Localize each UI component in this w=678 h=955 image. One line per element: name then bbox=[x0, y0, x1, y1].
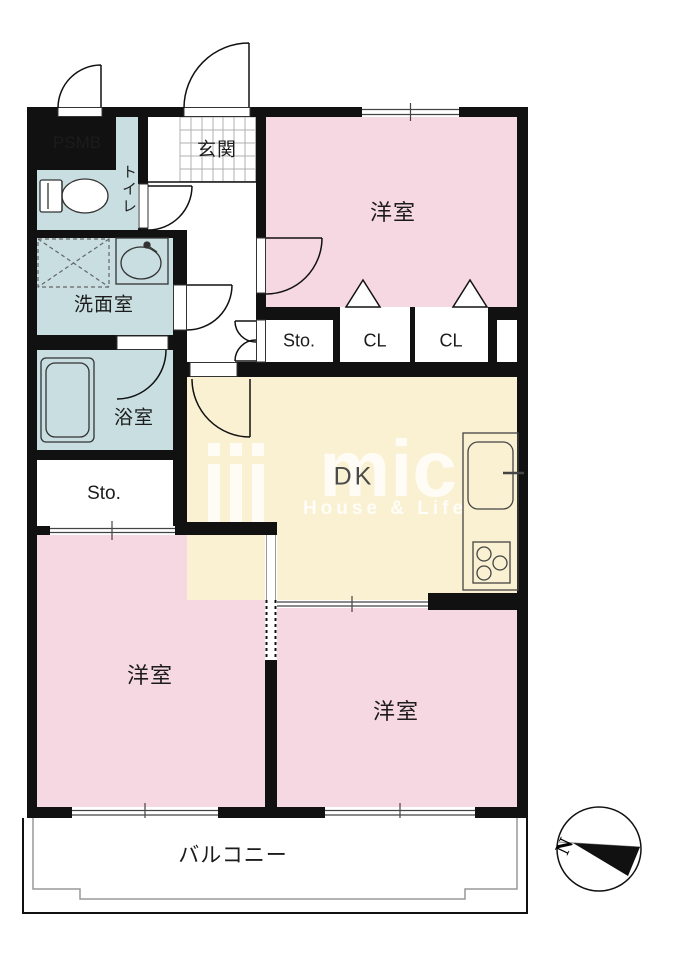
logo-dot bbox=[208, 443, 220, 456]
wall-dk-north bbox=[237, 362, 528, 377]
wall-hall-west bbox=[173, 230, 187, 535]
closet1-opening bbox=[340, 307, 410, 320]
wall-closet-stub-1 bbox=[333, 320, 340, 362]
logo-dot bbox=[230, 443, 242, 456]
storage-hall-double-door bbox=[235, 321, 256, 361]
logo-dot bbox=[252, 443, 264, 456]
label-balcony: バルコニー bbox=[178, 839, 288, 869]
closet2-opening bbox=[415, 307, 488, 320]
toilet-door-sill bbox=[139, 184, 148, 228]
wall-dk-southwest bbox=[173, 522, 277, 535]
entrance-door-sill bbox=[184, 108, 250, 117]
wall-toilet-south bbox=[27, 230, 187, 238]
label-washroom: 洗面室 bbox=[74, 290, 134, 317]
watermark-tagline: House & Life bbox=[303, 498, 467, 519]
wall-between-bedrooms bbox=[265, 660, 277, 818]
bathroom-floor bbox=[36, 335, 173, 460]
wall-bathroom-storage bbox=[27, 450, 187, 460]
wall-storage-stub bbox=[37, 526, 50, 535]
label-closet-1: CL bbox=[363, 331, 386, 352]
label-pipe-space: PSMB bbox=[53, 133, 101, 153]
wall-closet-stub-3 bbox=[488, 320, 497, 362]
label-closet-2: CL bbox=[439, 331, 462, 352]
wall-bedroom-south-a bbox=[256, 307, 340, 320]
wall-closet-stub-2 bbox=[410, 320, 415, 362]
label-bedroom-southeast: 洋室 bbox=[373, 694, 419, 726]
entrance-door-swing bbox=[184, 43, 249, 108]
dk-door-sill bbox=[190, 363, 237, 377]
psmb-door-swing bbox=[58, 65, 101, 108]
watermark-logo bbox=[208, 443, 264, 522]
partition-strip bbox=[265, 535, 277, 660]
label-entrance: 玄関 bbox=[197, 135, 237, 162]
toilet-door-swing bbox=[148, 186, 192, 230]
label-bedroom-north: 洋室 bbox=[370, 195, 416, 227]
floor-plan: mic House & Life bbox=[0, 0, 678, 955]
bedroom-north-door-sill bbox=[257, 238, 266, 293]
wall-hall-bedroom-upper bbox=[256, 117, 266, 238]
label-toilet: トイレ bbox=[118, 164, 139, 215]
logo-bar bbox=[208, 464, 220, 522]
wall-dk-north-corner bbox=[185, 362, 190, 377]
wall-bedroom-south-mid bbox=[410, 307, 415, 320]
label-bathroom: 浴室 bbox=[114, 403, 154, 430]
wall-east bbox=[517, 107, 528, 818]
psmb-door-sill bbox=[58, 108, 102, 117]
label-bedroom-southwest: 洋室 bbox=[127, 658, 173, 690]
wall-west bbox=[27, 107, 37, 818]
logo-bar bbox=[230, 464, 242, 522]
storage-hall-door-sill bbox=[257, 320, 266, 362]
label-storage-hall: Sto. bbox=[283, 331, 315, 352]
washroom-door-swing bbox=[187, 285, 232, 330]
compass: N bbox=[550, 807, 641, 891]
bathroom-door-sill bbox=[117, 336, 168, 350]
wall-toilet-east-upper bbox=[138, 117, 148, 184]
wall-bedroom-south-b bbox=[488, 307, 528, 320]
label-dining-kitchen: DK bbox=[334, 463, 375, 492]
logo-bar bbox=[252, 464, 264, 522]
washroom-door-sill bbox=[174, 285, 187, 330]
toilet-fixture-icon bbox=[40, 179, 108, 213]
label-storage-left: Sto. bbox=[87, 483, 121, 505]
wall-dk-southeast bbox=[428, 593, 518, 610]
